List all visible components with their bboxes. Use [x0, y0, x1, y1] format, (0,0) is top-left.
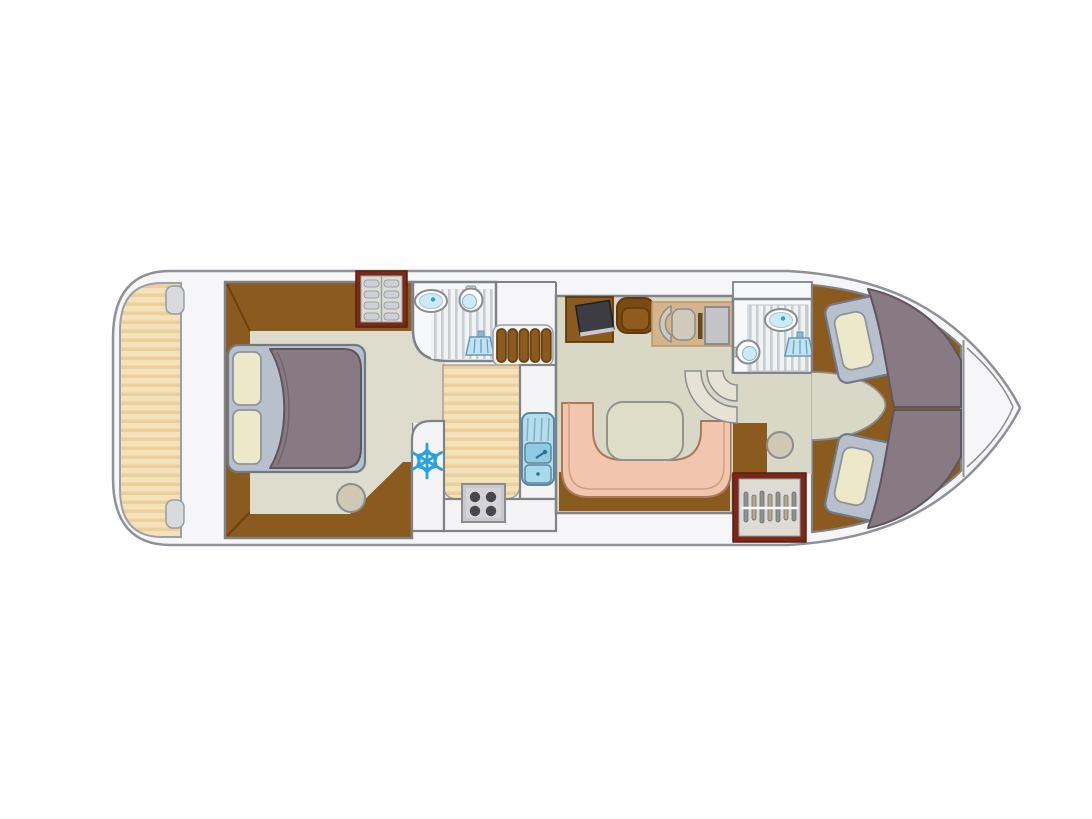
burner: [486, 506, 496, 516]
floor-plan-page: [0, 0, 1092, 819]
kitchen-sink: [522, 413, 554, 485]
drain-dot: [536, 472, 540, 476]
tv-icon: [576, 301, 614, 337]
stool-aft: [337, 484, 365, 512]
bathroom-fwd: [733, 282, 813, 373]
stair-treads: [497, 329, 551, 362]
stool-fwd: [767, 432, 793, 458]
washbasin-icon: [415, 290, 447, 312]
tv-cabinet: [566, 297, 614, 342]
aft-deck-step-starboard: [166, 500, 184, 528]
bathroom-aft: [411, 282, 496, 361]
burner: [470, 506, 480, 516]
sink-basin-small: [525, 443, 551, 463]
burner: [470, 492, 480, 502]
faucet-base: [543, 450, 547, 454]
stove: [462, 484, 505, 522]
passage-wood-patch: [733, 423, 767, 474]
aft-deck-step-port: [166, 286, 184, 314]
aft-deck: [120, 283, 184, 537]
pillow: [233, 410, 261, 464]
locker-cabinet: [733, 282, 812, 299]
burner: [486, 492, 496, 502]
helm-seat: [672, 309, 695, 340]
pillow: [233, 352, 261, 405]
washbasin-icon: [765, 309, 797, 331]
wardrobe-aft: [356, 271, 407, 327]
helm-station: [652, 302, 733, 346]
armchair: [617, 298, 654, 333]
boat-floor-plan: [0, 0, 1092, 819]
master-double-bed: [228, 345, 365, 472]
dinette-table: [607, 402, 683, 460]
galley-floor: [443, 365, 520, 499]
steering-column: [698, 313, 703, 339]
helm-console: [705, 307, 729, 344]
wardrobe-fwd: [733, 473, 806, 542]
aft-deck-planking: [120, 283, 181, 537]
